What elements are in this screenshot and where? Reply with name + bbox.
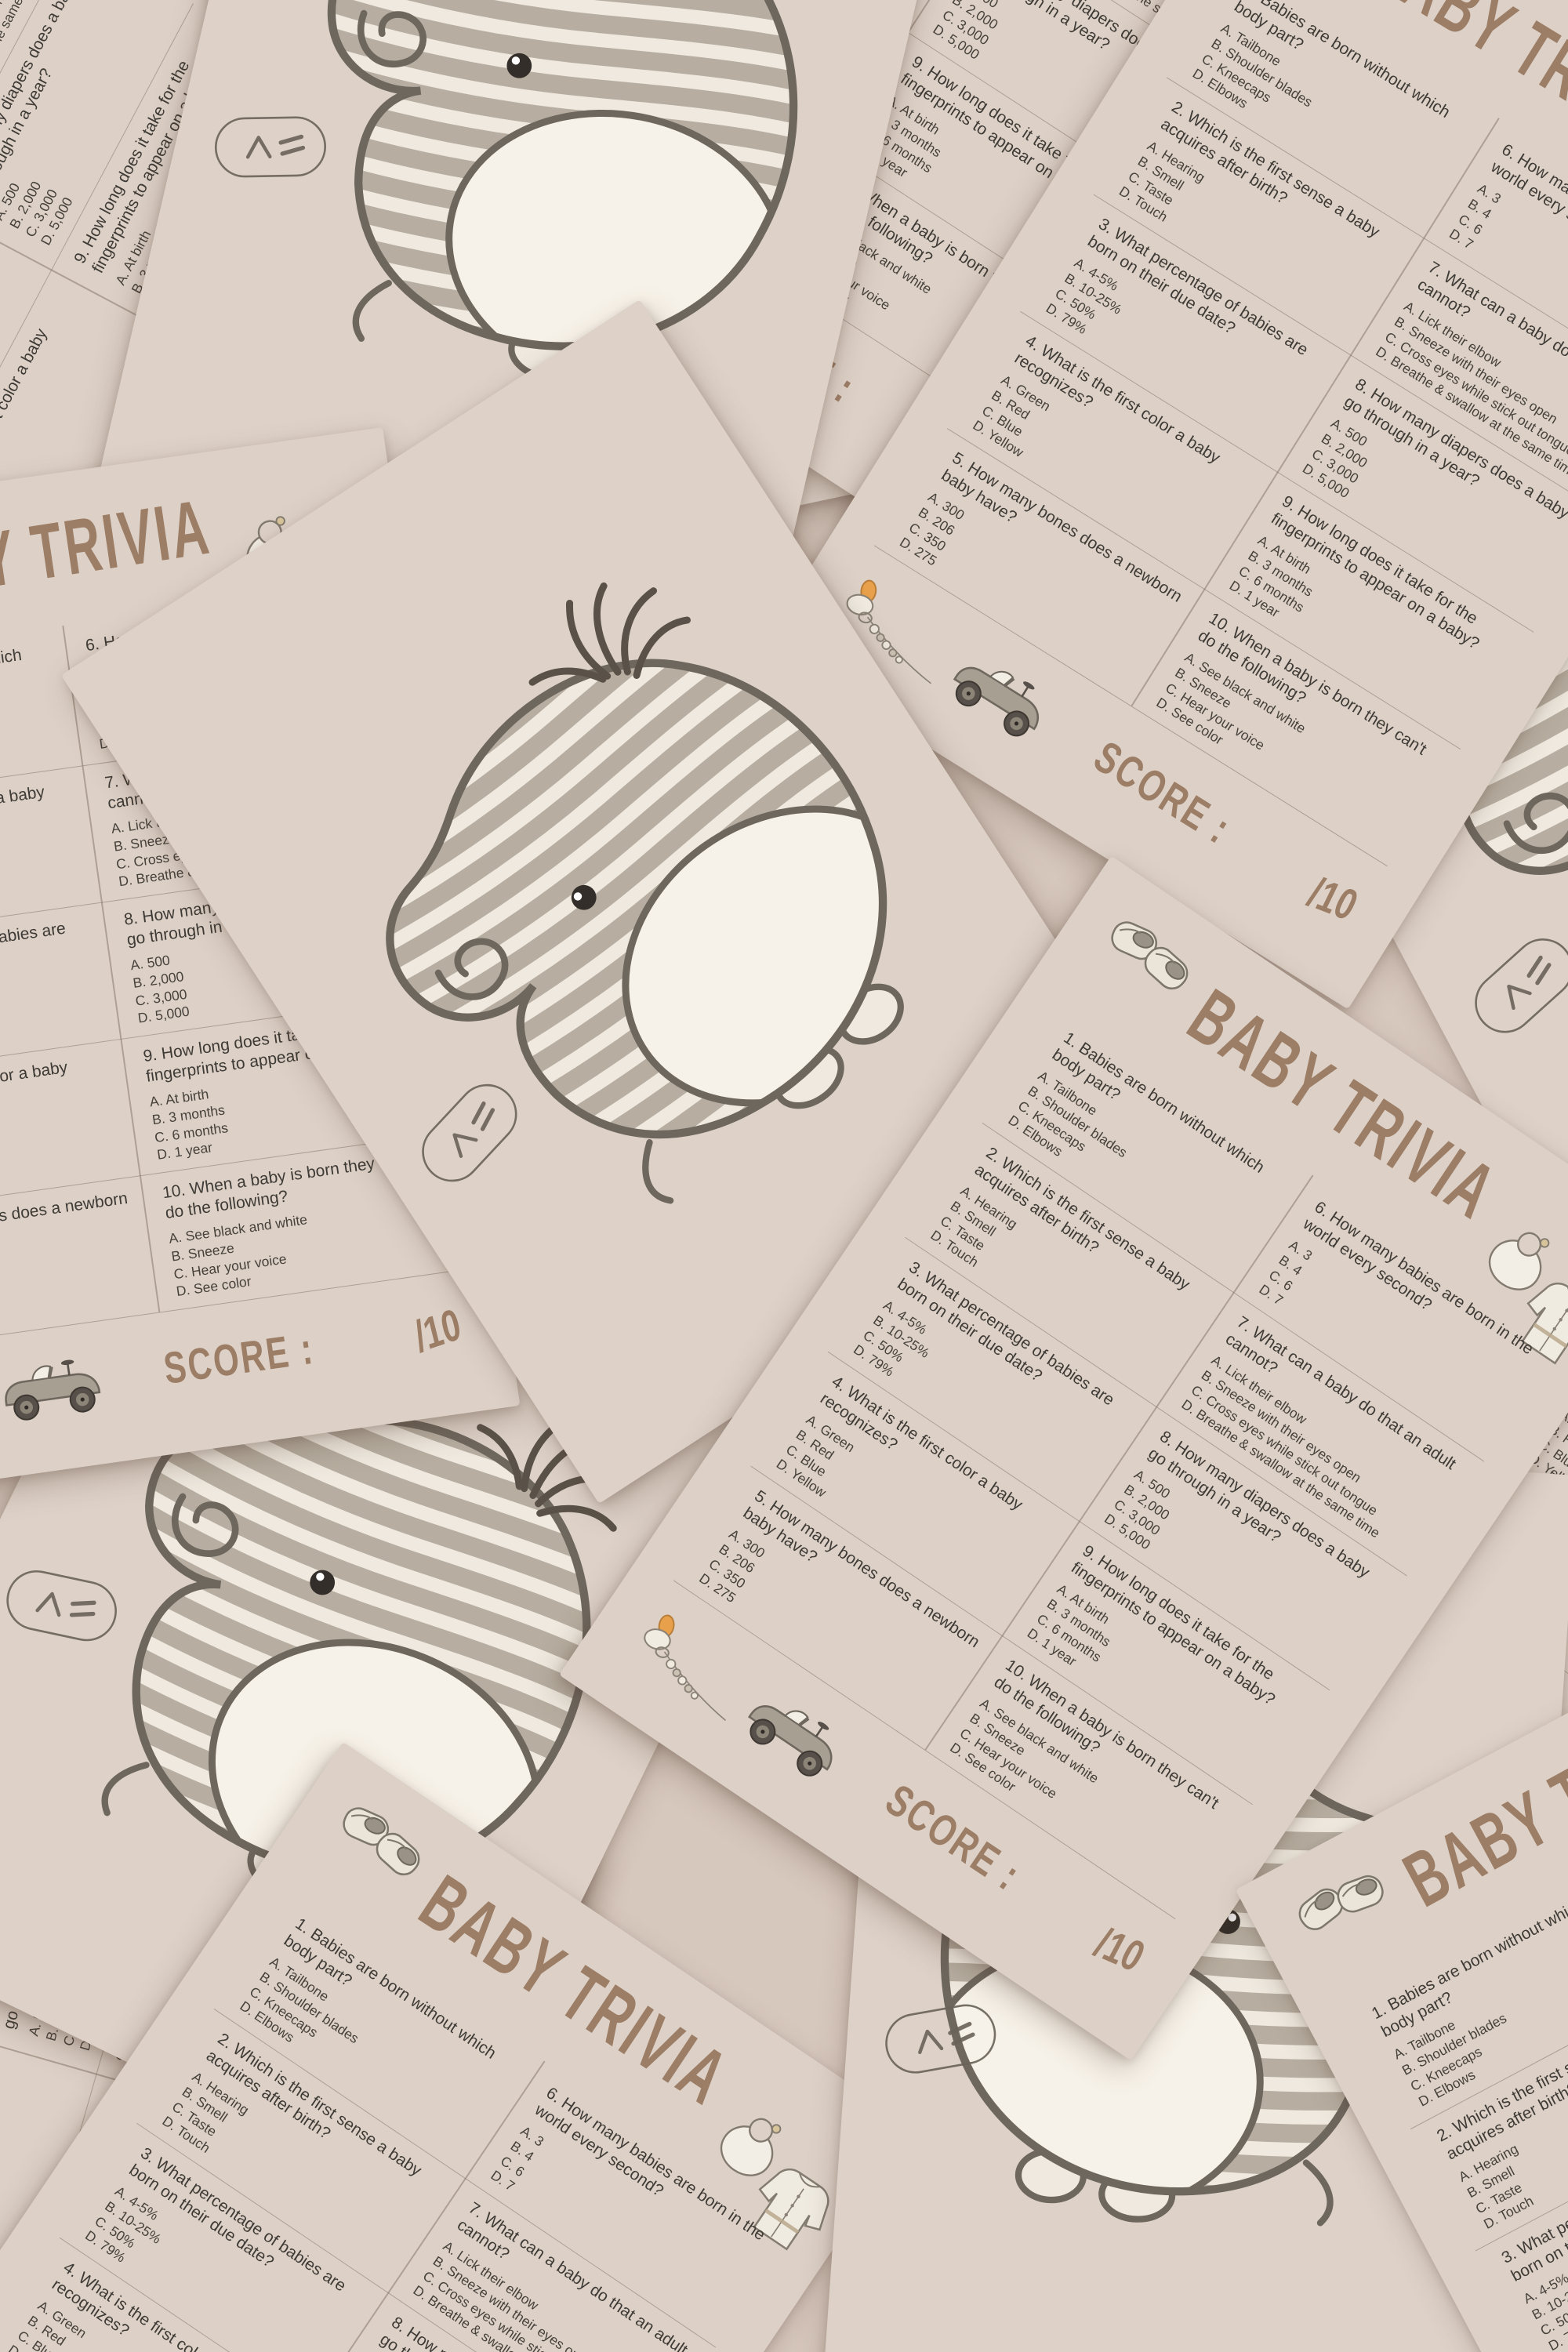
baby-shoes-icon — [1282, 1845, 1403, 1948]
score-total: /10 — [1087, 1918, 1152, 1981]
score-line: SCORE : /10 — [162, 1309, 463, 1388]
baby-shoes-icon — [1095, 898, 1216, 1007]
score-label: SCORE : — [161, 1323, 318, 1394]
score-total: /10 — [409, 1299, 465, 1363]
score-blank — [1227, 833, 1313, 887]
score-total: /10 — [1300, 868, 1365, 930]
score-blank — [1016, 1880, 1101, 1937]
brand-logo-icon — [211, 113, 329, 181]
pacifier-clip-and-toy-car-icon — [0, 1345, 128, 1447]
score-blank — [314, 1334, 415, 1348]
flat-lay-canvas: BABY TRIVIA 1. Babies are born without w… — [0, 0, 1568, 2352]
baby-shoes-icon — [327, 1784, 448, 1893]
